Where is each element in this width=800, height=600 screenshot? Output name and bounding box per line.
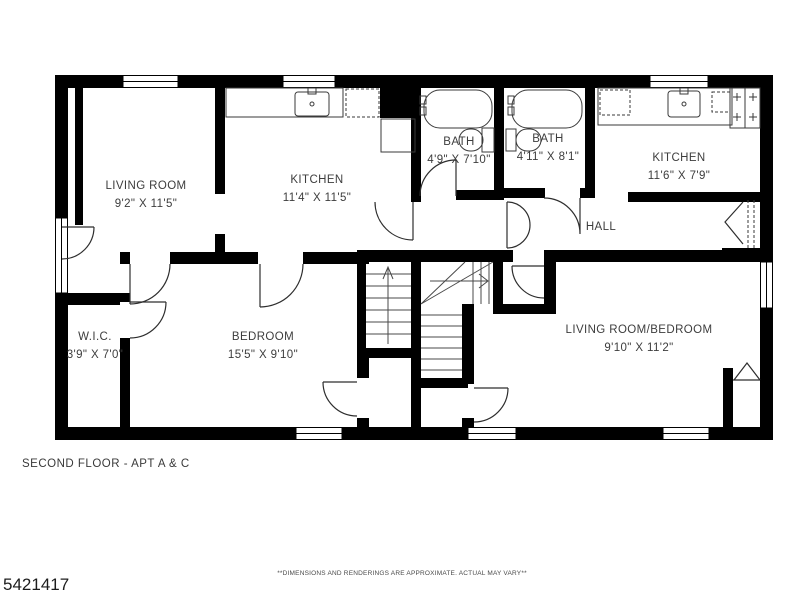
- window-bottom-bedroom: [296, 428, 342, 440]
- label-bath-left: BATH 4'9" X 7'10": [427, 133, 490, 169]
- window-bottom-center: [468, 428, 516, 440]
- bifold-pantry: [725, 202, 743, 244]
- kitchen-right-counter: [598, 88, 760, 128]
- sink-kitchen-right: [668, 91, 700, 117]
- label-living-room: LIVING ROOM 9'2" X 11'5": [105, 177, 186, 213]
- label-bath-right: BATH 4'11" X 8'1": [517, 130, 580, 166]
- door-bath-right: [544, 198, 580, 234]
- label-kitchen-left: KITCHEN 11'4" X 11'5": [283, 171, 351, 207]
- stairs-right-arrow: [430, 274, 488, 288]
- label-living-room-bedroom: LIVING ROOM/BEDROOM 9'10" X 11'2": [566, 321, 713, 357]
- window-top-living-room: [123, 76, 178, 88]
- stairs-up-arrow: [383, 267, 393, 344]
- bathtub-left: [420, 90, 492, 128]
- stairs-right-run: [421, 262, 493, 370]
- door-bedroom-from-kitchen: [260, 264, 303, 307]
- stairs-left-run: [366, 267, 411, 344]
- sink-kitchen-left: [295, 92, 329, 116]
- door-bedroom-from-vestibule: [130, 264, 170, 304]
- fridge-dashed: [346, 89, 379, 117]
- label-bedroom: BEDROOM 15'5" X 9'10": [228, 328, 298, 364]
- window-bottom-right: [663, 428, 709, 440]
- door-wic: [130, 302, 166, 338]
- floor-title: SECOND FLOOR - APT A & C: [22, 458, 190, 470]
- floorplan-linework: [0, 0, 800, 600]
- window-top-kitchen-right: [650, 76, 708, 88]
- window-left-wall: [56, 218, 68, 293]
- pantry-shelf-dashes: [748, 200, 754, 248]
- listing-id: 5421417: [3, 575, 69, 595]
- label-hall: HALL: [586, 218, 616, 236]
- floorplan-page: LIVING ROOM 9'2" X 11'5" KITCHEN 11'4" X…: [0, 0, 800, 600]
- bifold-closet-bottom-right: [733, 363, 760, 380]
- door-hall-closet: [512, 266, 544, 298]
- window-right-wall: [761, 262, 773, 308]
- window-top-kitchen-left: [283, 76, 335, 88]
- door-linen-double: [507, 202, 530, 248]
- label-kitchen-right: KITCHEN 11'6" X 7'9": [648, 149, 711, 185]
- disclaimer-text: **DIMENSIONS AND RENDERINGS ARE APPROXIM…: [277, 570, 527, 577]
- walls: [55, 75, 773, 440]
- door-living-bedroom: [474, 388, 508, 422]
- door-kitchen-left-from-hall: [375, 202, 413, 240]
- bathtub-right: [508, 90, 582, 128]
- label-wic: W.I.C. 3'9" X 7'0": [67, 328, 124, 364]
- stove: [730, 88, 760, 128]
- door-bedroom-stair-room: [323, 382, 357, 416]
- cabinet-below-chase: [381, 119, 415, 152]
